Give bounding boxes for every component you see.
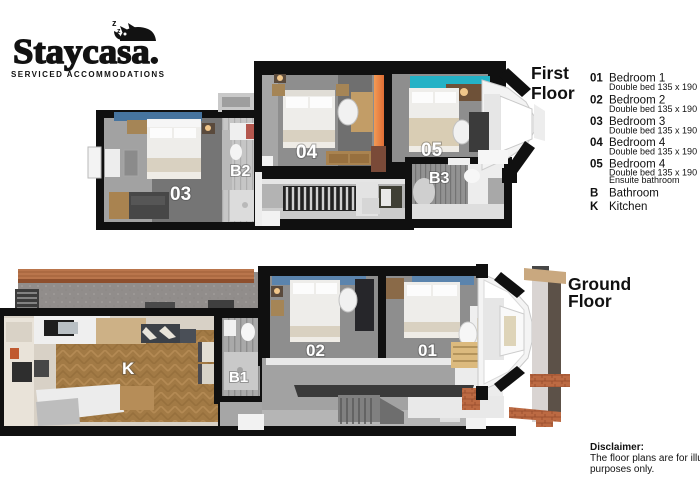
svg-text:First: First bbox=[531, 63, 569, 83]
svg-text:Double bed 135 x 190 cm.: Double bed 135 x 190 cm. bbox=[609, 125, 700, 135]
svg-text:Double bed 135 x 190 cm.: Double bed 135 x 190 cm. bbox=[609, 147, 700, 157]
svg-text:Ensuite bathroom: Ensuite bathroom bbox=[609, 175, 680, 185]
svg-text:02: 02 bbox=[306, 341, 325, 360]
svg-text:01: 01 bbox=[418, 341, 437, 360]
svg-text:Double bed 135 x 190 cm.: Double bed 135 x 190 cm. bbox=[609, 104, 700, 114]
svg-text:Floor: Floor bbox=[568, 291, 612, 311]
svg-text:z: z bbox=[117, 28, 121, 35]
svg-text:K: K bbox=[590, 201, 599, 213]
svg-text:01: 01 bbox=[590, 73, 603, 85]
svg-text:Bathroom: Bathroom bbox=[609, 188, 659, 200]
svg-text:B1: B1 bbox=[229, 369, 248, 386]
svg-text:Disclaimer:: Disclaimer: bbox=[590, 442, 644, 453]
svg-text:z: z bbox=[112, 18, 117, 28]
svg-text:05: 05 bbox=[590, 159, 603, 171]
svg-text:Double bed 135 x 190 cm.: Double bed 135 x 190 cm. bbox=[609, 82, 700, 92]
svg-text:Kitchen: Kitchen bbox=[609, 201, 647, 213]
svg-text:04: 04 bbox=[590, 137, 603, 149]
svg-text:Floor: Floor bbox=[531, 83, 575, 103]
svg-text:03: 03 bbox=[170, 184, 191, 205]
svg-text:SERVICED ACCOMMODATIONS: SERVICED ACCOMMODATIONS bbox=[11, 70, 165, 79]
svg-text:B3: B3 bbox=[429, 170, 450, 187]
svg-text:K: K bbox=[122, 359, 135, 378]
svg-text:purposes only.: purposes only. bbox=[590, 464, 654, 475]
svg-text:B: B bbox=[590, 188, 598, 200]
svg-text:The floor plans are for illust: The floor plans are for illustration bbox=[590, 453, 700, 464]
svg-text:04: 04 bbox=[296, 142, 318, 163]
svg-text:03: 03 bbox=[590, 116, 603, 128]
svg-text:02: 02 bbox=[590, 95, 603, 107]
svg-text:B2: B2 bbox=[230, 163, 251, 180]
